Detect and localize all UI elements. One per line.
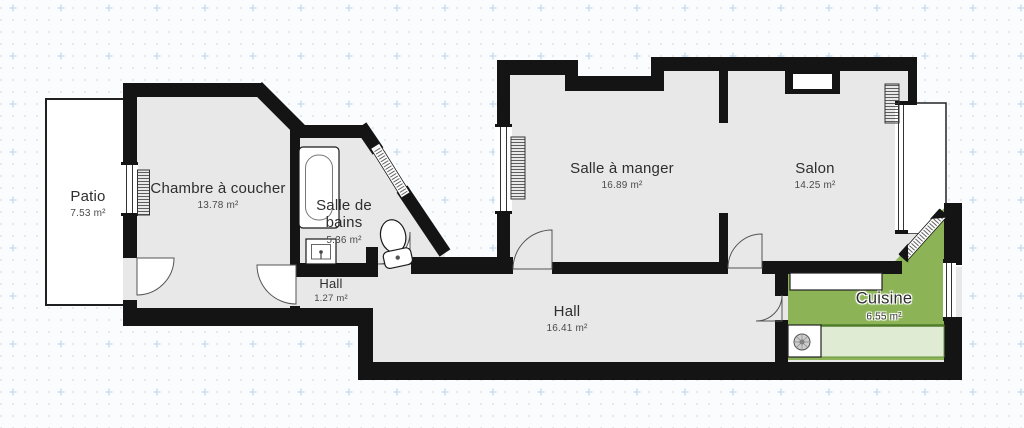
- room-salle-a-manger[interactable]: [512, 74, 717, 259]
- room-hall-principal[interactable]: [378, 278, 773, 358]
- floor-plan-canvas: Patio 7.53 m² Chambre à coucher 13.78 m²…: [0, 0, 1024, 428]
- stove-icon[interactable]: [788, 325, 821, 357]
- floor-plan-svg: [0, 0, 1024, 428]
- room-salon[interactable]: [730, 74, 893, 257]
- window-bedroom[interactable]: [121, 162, 138, 216]
- window-dining[interactable]: [495, 124, 512, 214]
- room-hall-petit[interactable]: [302, 278, 370, 306]
- kitchen-counter-top[interactable]: [790, 273, 882, 290]
- room-salle-de-bains[interactable]: [300, 140, 400, 260]
- window-kitchen[interactable]: [943, 259, 956, 321]
- kitchen-counter-bottom[interactable]: [820, 325, 944, 357]
- room-chambre[interactable]: [140, 100, 285, 305]
- room-patio[interactable]: [46, 99, 133, 305]
